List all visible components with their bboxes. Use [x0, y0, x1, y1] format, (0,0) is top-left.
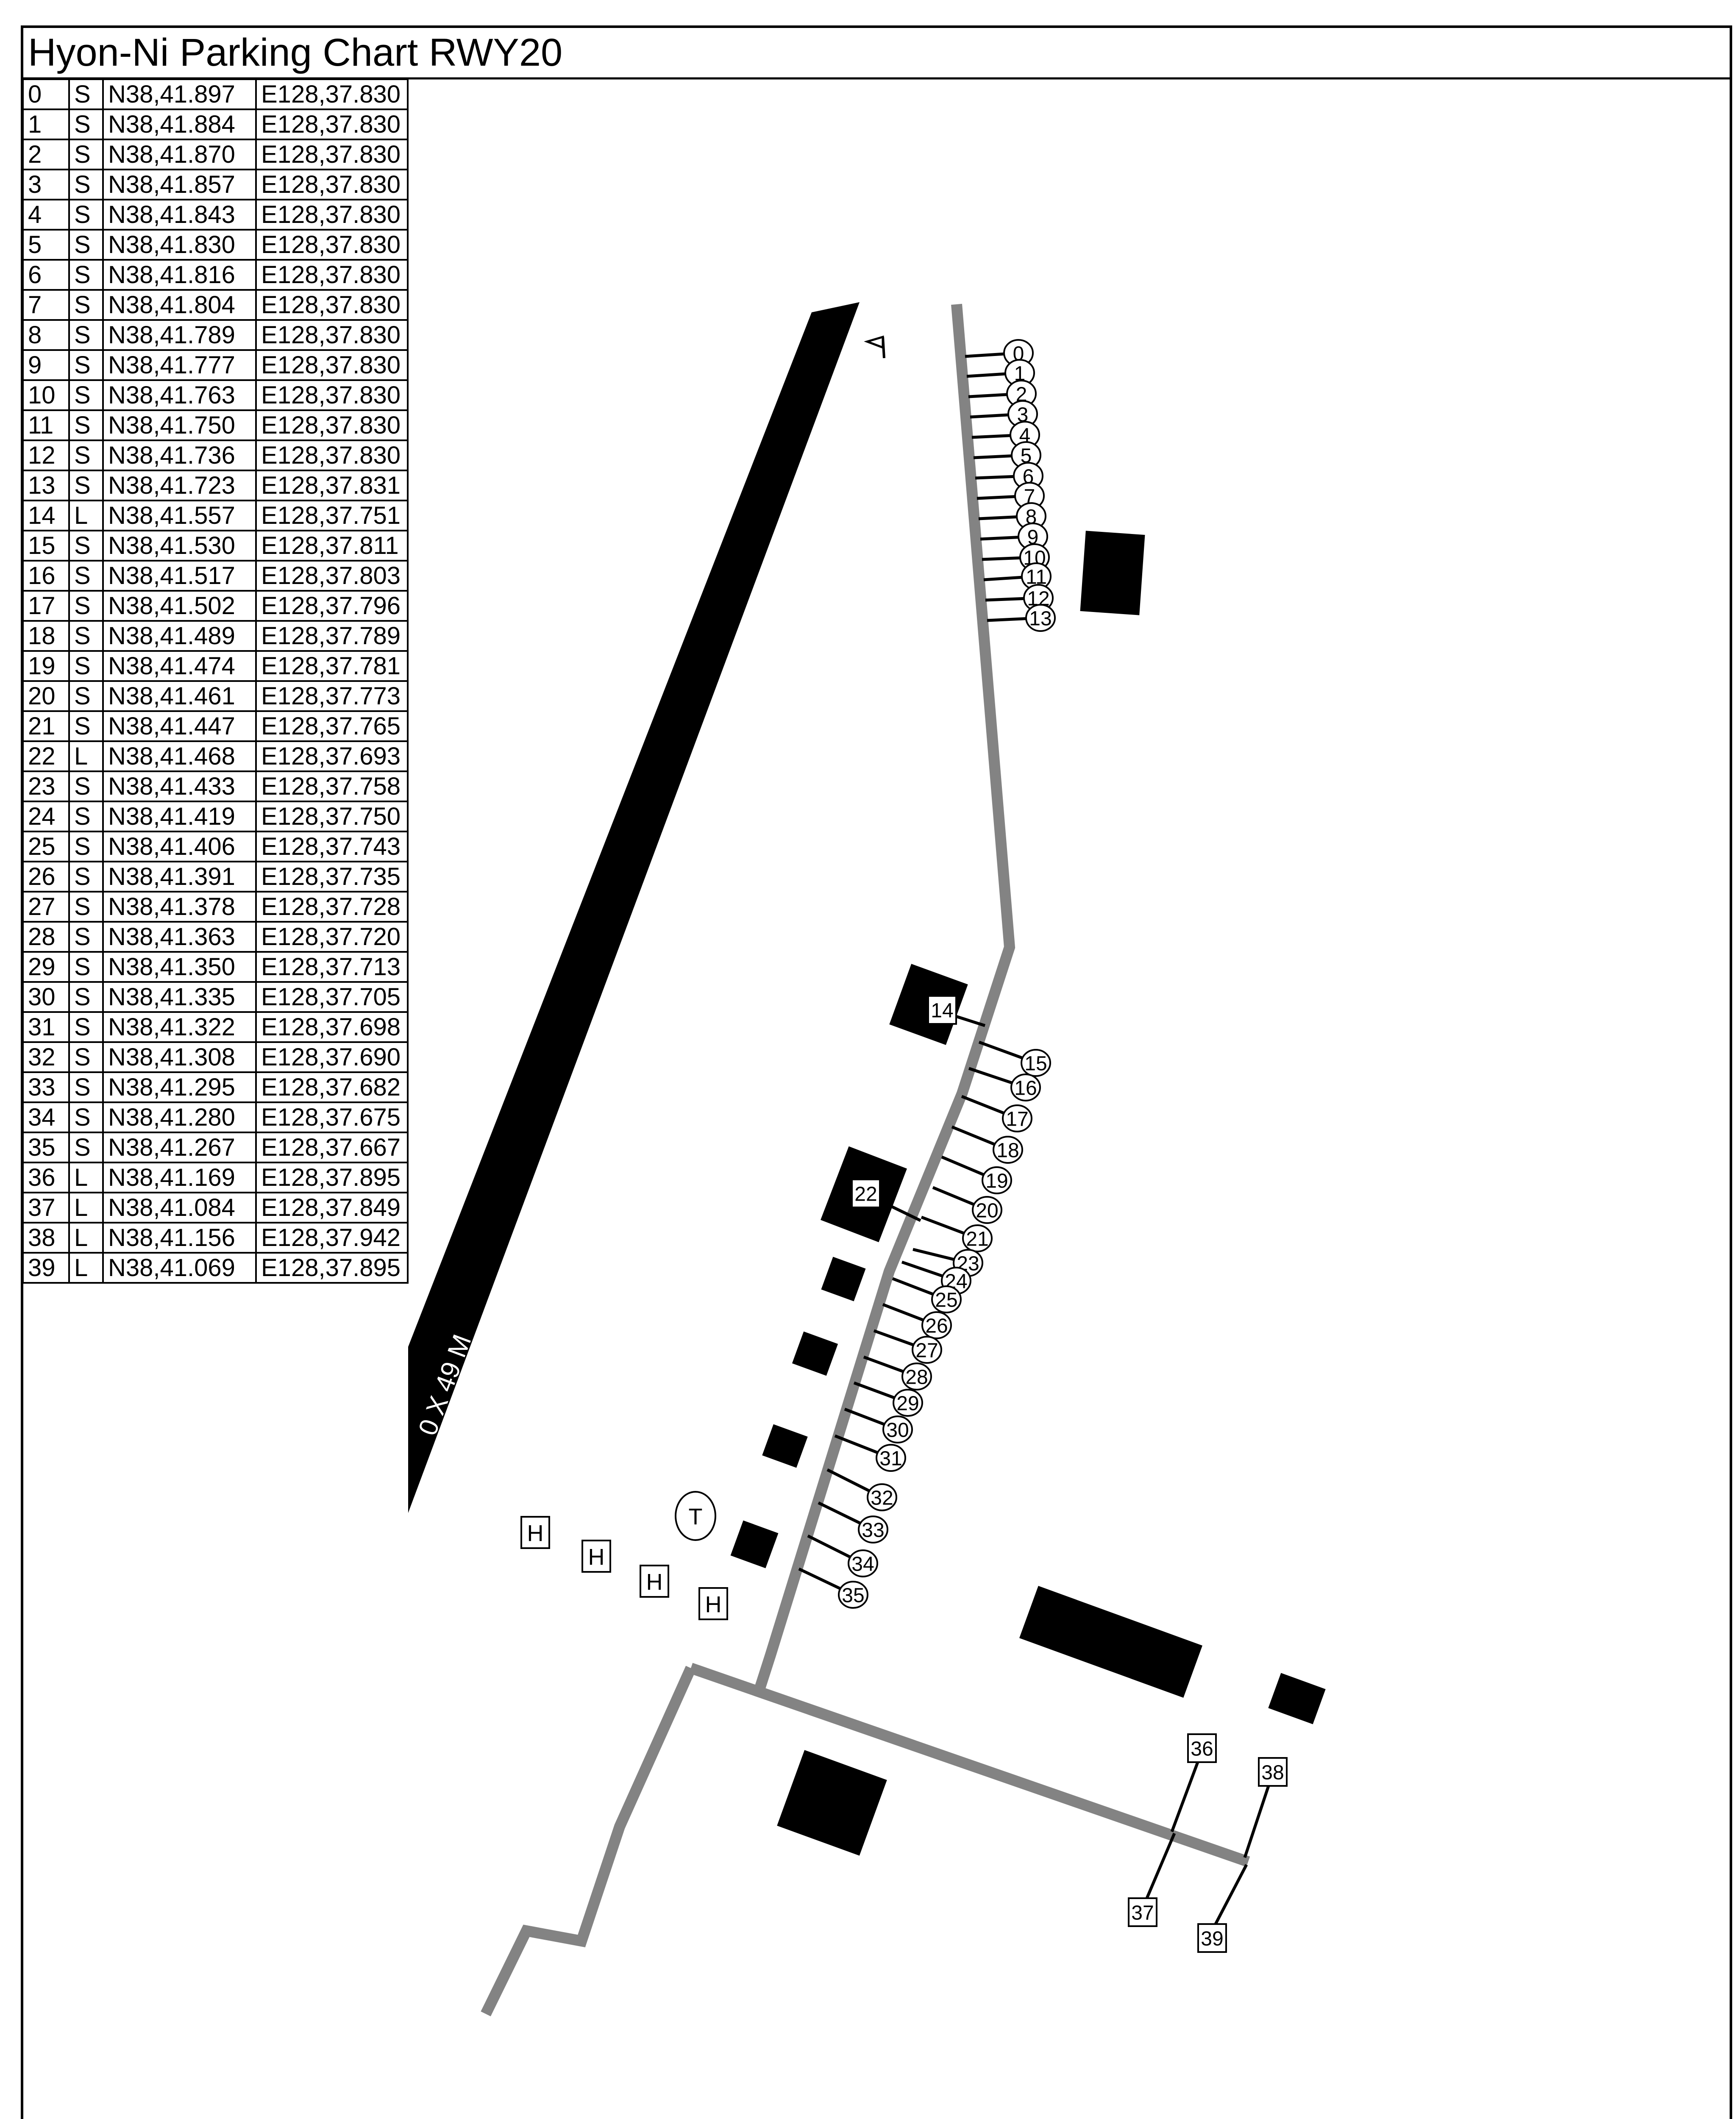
coords-row: 38LN38,41.156E128,37.942	[23, 1223, 408, 1253]
spot-longitude-cell: E128,37.830	[256, 350, 408, 380]
spot-size-cell: S	[69, 531, 103, 561]
spot-id-cell: 24	[23, 801, 69, 831]
spot-id-cell: 36	[23, 1162, 69, 1193]
spot-id-cell: 12	[23, 440, 69, 470]
coords-row: 28SN38,41.363E128,37.720	[23, 922, 408, 952]
spot-longitude-cell: E128,37.830	[256, 79, 408, 109]
spot-id-cell: 37	[23, 1193, 69, 1223]
building	[821, 1257, 865, 1301]
spot-longitude-cell: E128,37.667	[256, 1132, 408, 1162]
spot-latitude-cell: N38,41.843	[103, 200, 256, 230]
coords-row: 32SN38,41.308E128,37.690	[23, 1042, 408, 1072]
spot-size-cell: S	[69, 982, 103, 1012]
spot-size-cell: S	[69, 200, 103, 230]
coords-row: 6SN38,41.816E128,37.830	[23, 260, 408, 290]
spot-size-cell: L	[69, 1162, 103, 1193]
coords-row: 26SN38,41.391E128,37.735	[23, 862, 408, 892]
coords-row: 34SN38,41.280E128,37.675	[23, 1102, 408, 1132]
spot-id-cell: 8	[23, 320, 69, 350]
parking-spot-number: 14	[931, 1000, 953, 1022]
spot-id-cell: 30	[23, 982, 69, 1012]
spot-size-cell: S	[69, 1042, 103, 1072]
spot-id-cell: 10	[23, 380, 69, 410]
parking-spot-number: 39	[1201, 1928, 1223, 1950]
parking-spot-number: 37	[1131, 1902, 1154, 1924]
parking-spot-number: 34	[851, 1553, 874, 1576]
parking-spot-number: 18	[996, 1140, 1019, 1162]
building	[1019, 1586, 1202, 1698]
spot-size-cell: S	[69, 952, 103, 982]
spot-longitude-cell: E128,37.830	[256, 320, 408, 350]
spot-latitude-cell: N38,41.280	[103, 1102, 256, 1132]
coords-row: 3SN38,41.857E128,37.830	[23, 170, 408, 200]
helipad-letter: H	[588, 1544, 605, 1570]
spot-id-cell: 7	[23, 290, 69, 320]
spot-longitude-cell: E128,37.750	[256, 801, 408, 831]
building	[731, 1521, 779, 1568]
spot-longitude-cell: E128,37.830	[256, 260, 408, 290]
coords-row: 21SN38,41.447E128,37.765	[23, 711, 408, 741]
spot-id-cell: 39	[23, 1253, 69, 1283]
spot-size-cell: S	[69, 410, 103, 440]
tower-marker-letter: T	[689, 1504, 703, 1529]
spot-size-cell: S	[69, 440, 103, 470]
building	[1268, 1673, 1325, 1724]
spot-longitude-cell: E128,37.830	[256, 139, 408, 170]
road-left-zigzag	[486, 1668, 691, 2014]
parking-spot-number: 21	[966, 1228, 988, 1251]
spot-latitude-cell: N38,41.433	[103, 771, 256, 801]
spot-id-cell: 23	[23, 771, 69, 801]
spot-size-cell: S	[69, 1102, 103, 1132]
coords-row: 29SN38,41.350E128,37.713	[23, 952, 408, 982]
spot-latitude-cell: N38,41.736	[103, 440, 256, 470]
coords-row: 16SN38,41.517E128,37.803	[23, 561, 408, 591]
parking-spot-number: 31	[879, 1448, 902, 1470]
spot-longitude-cell: E128,37.773	[256, 681, 408, 711]
spot-id-cell: 11	[23, 410, 69, 440]
parking-coordinates-table: 0SN38,41.897E128,37.8301SN38,41.884E128,…	[22, 78, 409, 1284]
spot-latitude-cell: N38,41.322	[103, 1012, 256, 1042]
coords-row: 0SN38,41.897E128,37.830	[23, 79, 408, 109]
spot-size-cell: S	[69, 892, 103, 922]
spot-id-cell: 19	[23, 651, 69, 681]
parking-spot-number: 30	[886, 1419, 909, 1442]
spot-id-cell: 13	[23, 470, 69, 501]
spot-longitude-cell: E128,37.682	[256, 1072, 408, 1102]
spot-id-cell: 35	[23, 1132, 69, 1162]
spot-id-cell: 20	[23, 681, 69, 711]
spot-size-cell: S	[69, 922, 103, 952]
spot-size-cell: S	[69, 320, 103, 350]
parking-spot-number: 26	[925, 1315, 948, 1338]
spot-latitude-cell: N38,41.816	[103, 260, 256, 290]
spot-latitude-cell: N38,41.870	[103, 139, 256, 170]
parking-chart-page: 0 X 49 M01234567891011121315161718192021…	[0, 0, 1736, 2119]
coords-row: 5SN38,41.830E128,37.830	[23, 230, 408, 260]
spot-longitude-cell: E128,37.830	[256, 109, 408, 139]
spot-latitude-cell: N38,41.489	[103, 621, 256, 651]
spot-longitude-cell: E128,37.735	[256, 862, 408, 892]
parking-spot-number: 13	[1029, 608, 1052, 630]
spot-latitude-cell: N38,41.069	[103, 1253, 256, 1283]
coords-row: 25SN38,41.406E128,37.743	[23, 831, 408, 862]
parking-spot-number: 25	[935, 1289, 957, 1312]
spot-id-cell: 27	[23, 892, 69, 922]
spot-longitude-cell: E128,37.942	[256, 1223, 408, 1253]
spot-longitude-cell: E128,37.830	[256, 380, 408, 410]
spot-longitude-cell: E128,37.830	[256, 410, 408, 440]
coords-row: 15SN38,41.530E128,37.811	[23, 531, 408, 561]
coords-row: 2SN38,41.870E128,37.830	[23, 139, 408, 170]
spot-latitude-cell: N38,41.378	[103, 892, 256, 922]
spot-longitude-cell: E128,37.811	[256, 531, 408, 561]
road-main-diagonal	[691, 1668, 1248, 1862]
spot-size-cell: S	[69, 561, 103, 591]
spot-longitude-cell: E128,37.713	[256, 952, 408, 982]
parking-spot-number: 27	[915, 1340, 938, 1362]
spot-size-cell: S	[69, 651, 103, 681]
spot-size-cell: S	[69, 109, 103, 139]
spot-longitude-cell: E128,37.830	[256, 290, 408, 320]
coords-row: 4SN38,41.843E128,37.830	[23, 200, 408, 230]
spot-latitude-cell: N38,41.763	[103, 380, 256, 410]
spot-longitude-cell: E128,37.895	[256, 1253, 408, 1283]
spot-latitude-cell: N38,41.557	[103, 501, 256, 531]
spot-id-cell: 17	[23, 591, 69, 621]
spot-id-cell: 34	[23, 1102, 69, 1132]
spot-longitude-cell: E128,37.803	[256, 561, 408, 591]
parking-spot-number: 29	[896, 1393, 919, 1415]
spot-size-cell: L	[69, 501, 103, 531]
spot-longitude-cell: E128,37.830	[256, 440, 408, 470]
spot-longitude-cell: E128,37.831	[256, 470, 408, 501]
spot-latitude-cell: N38,41.363	[103, 922, 256, 952]
spot-latitude-cell: N38,41.084	[103, 1193, 256, 1223]
coords-row: 30SN38,41.335E128,37.705	[23, 982, 408, 1012]
spot-size-cell: S	[69, 711, 103, 741]
spot-size-cell: S	[69, 1132, 103, 1162]
page-title: Hyon-Ni Parking Chart RWY20	[28, 31, 562, 75]
spot-latitude-cell: N38,41.169	[103, 1162, 256, 1193]
coords-row: 18SN38,41.489E128,37.789	[23, 621, 408, 651]
spot-id-cell: 6	[23, 260, 69, 290]
spot-id-cell: 14	[23, 501, 69, 531]
building	[762, 1424, 807, 1468]
coords-row: 8SN38,41.789E128,37.830	[23, 320, 408, 350]
spot-size-cell: S	[69, 1072, 103, 1102]
spot-longitude-cell: E128,37.675	[256, 1102, 408, 1132]
coords-row: 24SN38,41.419E128,37.750	[23, 801, 408, 831]
spot-latitude-cell: N38,41.295	[103, 1072, 256, 1102]
parking-spot-number: 33	[862, 1519, 884, 1542]
spot-longitude-cell: E128,37.830	[256, 200, 408, 230]
spot-id-cell: 31	[23, 1012, 69, 1042]
spot-37-callout-line	[1147, 1833, 1174, 1898]
coords-row: 19SN38,41.474E128,37.781	[23, 651, 408, 681]
spot-latitude-cell: N38,41.419	[103, 801, 256, 831]
helipad-letter: H	[646, 1569, 663, 1595]
coords-row: 22LN38,41.468E128,37.693	[23, 741, 408, 771]
spot-latitude-cell: N38,41.884	[103, 109, 256, 139]
spot-latitude-cell: N38,41.723	[103, 470, 256, 501]
spot-longitude-cell: E128,37.705	[256, 982, 408, 1012]
spot-size-cell: S	[69, 862, 103, 892]
spot-latitude-cell: N38,41.308	[103, 1042, 256, 1072]
spot-39-callout-line	[1216, 1865, 1246, 1924]
spot-longitude-cell: E128,37.895	[256, 1162, 408, 1193]
spot-longitude-cell: E128,37.758	[256, 771, 408, 801]
spot-size-cell: S	[69, 260, 103, 290]
coords-table-body: 0SN38,41.897E128,37.8301SN38,41.884E128,…	[23, 79, 408, 1283]
spot-latitude-cell: N38,41.804	[103, 290, 256, 320]
parking-spot-number: 32	[871, 1487, 893, 1510]
spot-longitude-cell: E128,37.698	[256, 1012, 408, 1042]
coords-row: 17SN38,41.502E128,37.796	[23, 591, 408, 621]
parking-spot-number: 38	[1261, 1762, 1284, 1784]
spot-longitude-cell: E128,37.693	[256, 741, 408, 771]
spot-latitude-cell: N38,41.530	[103, 531, 256, 561]
spot-size-cell: L	[69, 1193, 103, 1223]
spot-latitude-cell: N38,41.391	[103, 862, 256, 892]
spot-longitude-cell: E128,37.690	[256, 1042, 408, 1072]
spot-latitude-cell: N38,41.474	[103, 651, 256, 681]
spot-latitude-cell: N38,41.267	[103, 1132, 256, 1162]
spot-latitude-cell: N38,41.468	[103, 741, 256, 771]
spot-id-cell: 0	[23, 79, 69, 109]
spot-id-cell: 4	[23, 200, 69, 230]
spot-longitude-cell: E128,37.751	[256, 501, 408, 531]
spot-latitude-cell: N38,41.335	[103, 982, 256, 1012]
spot-38-callout-line	[1245, 1786, 1269, 1858]
spot-latitude-cell: N38,41.517	[103, 561, 256, 591]
coords-row: 13SN38,41.723E128,37.831	[23, 470, 408, 501]
spot-longitude-cell: E128,37.781	[256, 651, 408, 681]
flag-icon	[867, 337, 883, 348]
taxiway-parking	[759, 304, 1010, 1689]
parking-spot-number: 15	[1024, 1053, 1047, 1075]
coords-row: 14LN38,41.557E128,37.751	[23, 501, 408, 531]
spot-size-cell: S	[69, 350, 103, 380]
spot-longitude-cell: E128,37.830	[256, 230, 408, 260]
parking-spot-number: 35	[842, 1585, 864, 1607]
coords-row: 9SN38,41.777E128,37.830	[23, 350, 408, 380]
spot-size-cell: S	[69, 771, 103, 801]
spot-size-cell: S	[69, 470, 103, 501]
helipad-letter: H	[705, 1592, 722, 1617]
spot-size-cell: S	[69, 681, 103, 711]
coords-row: 39LN38,41.069E128,37.895	[23, 1253, 408, 1283]
spot-longitude-cell: E128,37.743	[256, 831, 408, 862]
coords-row: 35SN38,41.267E128,37.667	[23, 1132, 408, 1162]
spot-id-cell: 32	[23, 1042, 69, 1072]
spot-size-cell: S	[69, 290, 103, 320]
spot-id-cell: 33	[23, 1072, 69, 1102]
spot-size-cell: S	[69, 801, 103, 831]
spot-latitude-cell: N38,41.777	[103, 350, 256, 380]
spot-size-cell: S	[69, 591, 103, 621]
parking-spot-number: 22	[854, 1183, 877, 1206]
spot-size-cell: S	[69, 621, 103, 651]
spot-id-cell: 38	[23, 1223, 69, 1253]
spot-size-cell: S	[69, 1012, 103, 1042]
spot-latitude-cell: N38,41.502	[103, 591, 256, 621]
coords-row: 1SN38,41.884E128,37.830	[23, 109, 408, 139]
coords-row: 12SN38,41.736E128,37.830	[23, 440, 408, 470]
coords-row: 37LN38,41.084E128,37.849	[23, 1193, 408, 1223]
spot-longitude-cell: E128,37.765	[256, 711, 408, 741]
spot-size-cell: S	[69, 831, 103, 862]
spot-longitude-cell: E128,37.789	[256, 621, 408, 651]
spot-id-cell: 15	[23, 531, 69, 561]
spot-latitude-cell: N38,41.156	[103, 1223, 256, 1253]
parking-spot-number: 28	[905, 1366, 928, 1389]
spot-size-cell: S	[69, 139, 103, 170]
spot-id-cell: 28	[23, 922, 69, 952]
spot-id-cell: 18	[23, 621, 69, 651]
spot-longitude-cell: E128,37.796	[256, 591, 408, 621]
spot-latitude-cell: N38,41.857	[103, 170, 256, 200]
coords-row: 10SN38,41.763E128,37.830	[23, 380, 408, 410]
parking-spot-number: 17	[1006, 1108, 1028, 1131]
helipad-letter: H	[527, 1521, 544, 1546]
building	[777, 1750, 887, 1855]
spot-longitude-cell: E128,37.720	[256, 922, 408, 952]
spot-size-cell: S	[69, 170, 103, 200]
coords-row: 20SN38,41.461E128,37.773	[23, 681, 408, 711]
spot-latitude-cell: N38,41.789	[103, 320, 256, 350]
spot-id-cell: 16	[23, 561, 69, 591]
building	[1080, 531, 1145, 615]
spot-longitude-cell: E128,37.830	[256, 170, 408, 200]
parking-spot-number: 16	[1014, 1077, 1037, 1100]
spot-id-cell: 29	[23, 952, 69, 982]
spot-id-cell: 2	[23, 139, 69, 170]
coords-row: 36LN38,41.169E128,37.895	[23, 1162, 408, 1193]
spot-id-cell: 1	[23, 109, 69, 139]
coords-row: 31SN38,41.322E128,37.698	[23, 1012, 408, 1042]
spot-latitude-cell: N38,41.897	[103, 79, 256, 109]
parking-spot-number: 36	[1191, 1738, 1213, 1760]
spot-longitude-cell: E128,37.728	[256, 892, 408, 922]
spot-36-callout-line	[1172, 1762, 1198, 1832]
spot-latitude-cell: N38,41.750	[103, 410, 256, 440]
runway-shape	[408, 302, 860, 1513]
coords-row: 7SN38,41.804E128,37.830	[23, 290, 408, 320]
coords-row: 23SN38,41.433E128,37.758	[23, 771, 408, 801]
coords-row: 11SN38,41.750E128,37.830	[23, 410, 408, 440]
spot-size-cell: L	[69, 1223, 103, 1253]
spot-size-cell: L	[69, 741, 103, 771]
spot-size-cell: S	[69, 230, 103, 260]
spot-id-cell: 3	[23, 170, 69, 200]
coords-row: 27SN38,41.378E128,37.728	[23, 892, 408, 922]
spot-size-cell: S	[69, 380, 103, 410]
spot-id-cell: 9	[23, 350, 69, 380]
spot-id-cell: 26	[23, 862, 69, 892]
spot-id-cell: 22	[23, 741, 69, 771]
spot-id-cell: 25	[23, 831, 69, 862]
spot-id-cell: 21	[23, 711, 69, 741]
spot-size-cell: L	[69, 1253, 103, 1283]
coords-row: 33SN38,41.295E128,37.682	[23, 1072, 408, 1102]
spot-id-cell: 5	[23, 230, 69, 260]
spot-size-cell: S	[69, 79, 103, 109]
spot-latitude-cell: N38,41.406	[103, 831, 256, 862]
spot-latitude-cell: N38,41.461	[103, 681, 256, 711]
spot-longitude-cell: E128,37.849	[256, 1193, 408, 1223]
spot-latitude-cell: N38,41.447	[103, 711, 256, 741]
building	[792, 1332, 838, 1376]
spot-latitude-cell: N38,41.350	[103, 952, 256, 982]
parking-spot-number: 20	[976, 1200, 998, 1222]
parking-spot-number: 19	[985, 1170, 1008, 1193]
spot-latitude-cell: N38,41.830	[103, 230, 256, 260]
